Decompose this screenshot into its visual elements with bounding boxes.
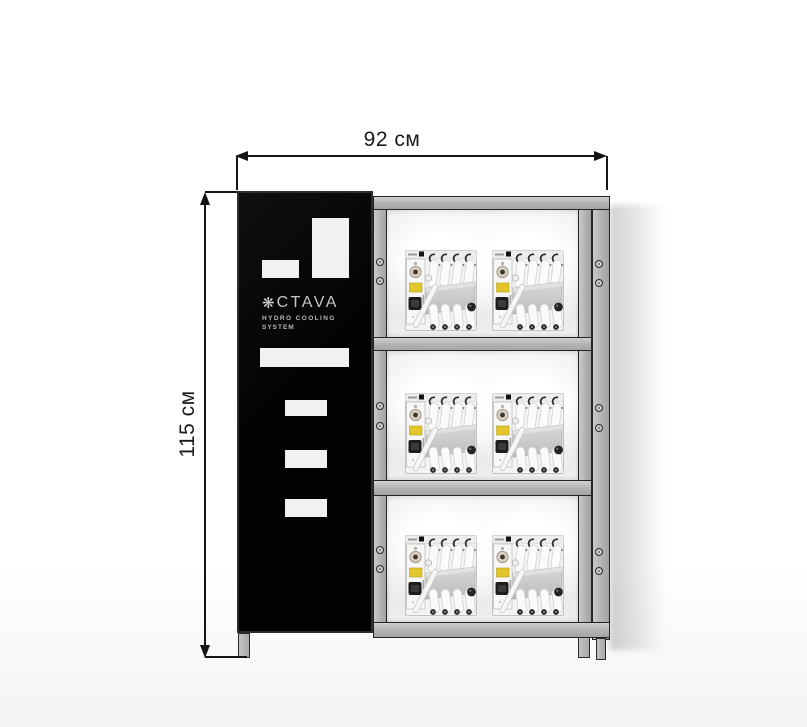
height-dimension-line bbox=[204, 203, 206, 647]
rack-post-right-inner bbox=[578, 196, 592, 638]
screw-icon bbox=[595, 548, 603, 556]
leg-front-left bbox=[238, 633, 250, 658]
screw-icon bbox=[376, 546, 384, 554]
rack-shelf-opening-2 bbox=[387, 351, 578, 480]
cooling-unit bbox=[492, 532, 565, 618]
brand-subtitle-1: HYDRO COOLING bbox=[262, 315, 362, 322]
panel-cutout-wide bbox=[260, 348, 349, 367]
brand-subtitle-2: SYSTEM bbox=[262, 324, 362, 331]
screw-icon bbox=[376, 277, 384, 285]
rack-bottom-bar bbox=[373, 622, 610, 638]
panel-cutout-slot-3 bbox=[285, 499, 327, 517]
extension-tick-bottom bbox=[205, 656, 247, 658]
leg-front-right bbox=[578, 637, 590, 658]
cooling-unit bbox=[405, 532, 478, 618]
panel-cutout-small bbox=[262, 260, 299, 278]
front-panel: ❋ CTAVA HYDRO COOLING SYSTEM bbox=[237, 191, 373, 633]
arrowhead-up-icon bbox=[200, 192, 210, 205]
rack-shelf-opening-3 bbox=[387, 496, 578, 622]
snowflake-icon: ❋ bbox=[262, 296, 275, 311]
cooling-unit bbox=[492, 390, 565, 476]
rack-shelf-bar-1 bbox=[373, 337, 592, 351]
extension-tick-left bbox=[236, 156, 238, 190]
screw-icon bbox=[595, 424, 603, 432]
cast-shadow bbox=[610, 205, 672, 650]
product-dimension-diagram: ❋ CTAVA HYDRO COOLING SYSTEM 92 см 115 с… bbox=[0, 0, 807, 727]
screw-icon bbox=[376, 402, 384, 410]
width-dimension-line bbox=[245, 155, 597, 157]
width-dimension-label: 92 см bbox=[237, 128, 547, 152]
rack-shelf-opening-1 bbox=[387, 210, 578, 337]
extension-tick-right bbox=[606, 156, 608, 190]
cooling-unit bbox=[492, 247, 565, 333]
screw-icon bbox=[376, 565, 384, 573]
rack-shelf-bar-2 bbox=[373, 480, 592, 496]
screw-icon bbox=[595, 567, 603, 575]
rack-top-bar bbox=[373, 196, 610, 210]
brand-name: CTAVA bbox=[277, 294, 339, 312]
screw-icon bbox=[376, 422, 384, 430]
leg-rear-right bbox=[596, 638, 606, 660]
brand-logo: ❋ CTAVA HYDRO COOLING SYSTEM bbox=[262, 294, 362, 331]
screw-icon bbox=[595, 279, 603, 287]
cooling-unit bbox=[405, 247, 478, 333]
panel-cutout-tall bbox=[312, 218, 349, 278]
screw-icon bbox=[595, 404, 603, 412]
panel-cutout-slot-2 bbox=[285, 450, 327, 468]
panel-cutout-slot-1 bbox=[285, 400, 327, 416]
cooling-unit bbox=[405, 390, 478, 476]
height-dimension-label: 115 см bbox=[176, 390, 200, 457]
extension-tick-top bbox=[205, 191, 237, 193]
screw-icon bbox=[376, 258, 384, 266]
screw-icon bbox=[595, 260, 603, 268]
